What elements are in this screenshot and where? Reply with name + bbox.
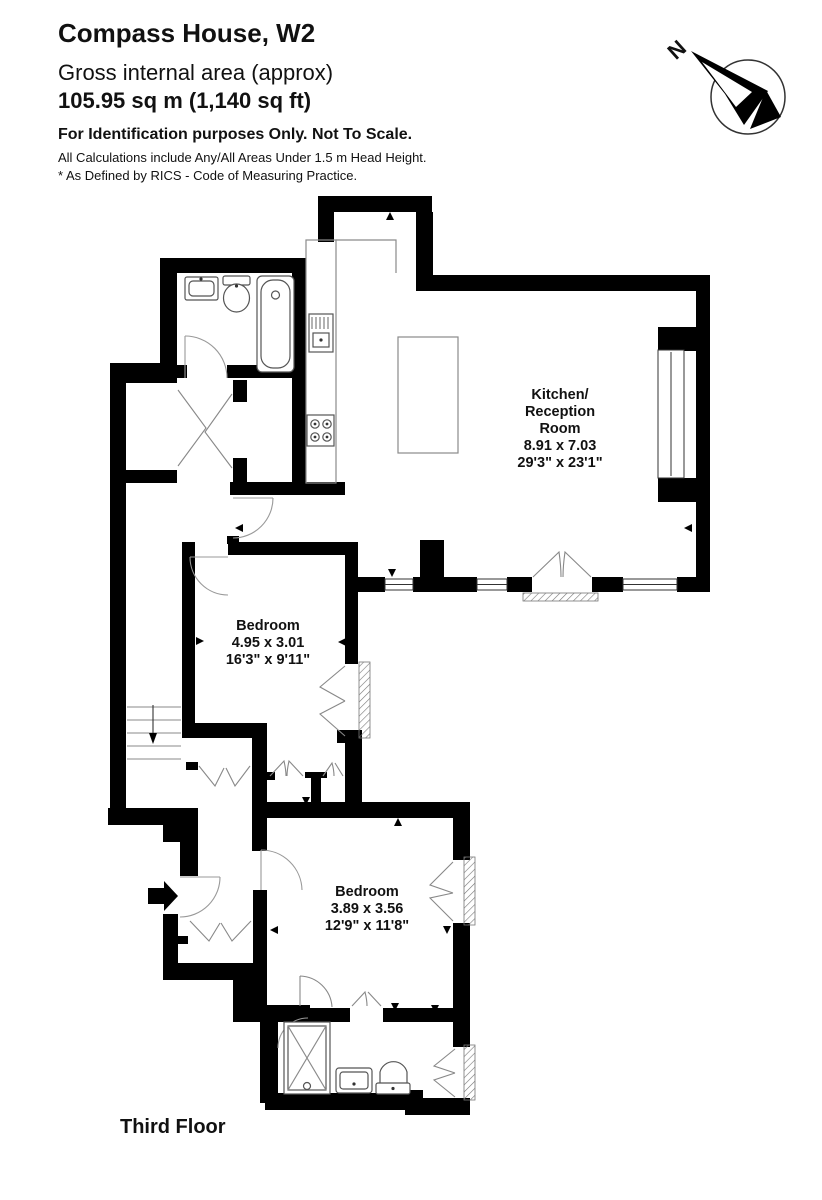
- corridor-door-arc: [233, 498, 273, 538]
- floorplan-drawing: Compass House, W2 Gross internal area (a…: [0, 0, 822, 1200]
- page-title: Compass House, W2: [58, 18, 315, 48]
- staircase: [127, 705, 181, 759]
- bathroom-door-arc: [185, 336, 227, 378]
- toilet-top-bowl: [224, 284, 250, 312]
- reception-french-doors: [533, 552, 591, 577]
- stairs-down-arrow-icon: [149, 733, 157, 744]
- bathroom-window-bifold: [434, 1049, 455, 1097]
- balcony-hatches: [359, 593, 598, 1100]
- kitchen-counter-return: [336, 240, 396, 273]
- bedroom2-juliet-bifold: [430, 862, 453, 921]
- svg-text:8.91 x 7.03: 8.91 x 7.03: [524, 438, 597, 454]
- header: Compass House, W2 Gross internal area (a…: [58, 18, 427, 183]
- kitchen-island: [398, 337, 458, 453]
- svg-text:3.89 x 3.56: 3.89 x 3.56: [331, 901, 404, 917]
- floor-label: Third Floor: [120, 1116, 226, 1138]
- bedroom1-door-arc: [190, 557, 228, 595]
- label-kitchen-reception: Kitchen/ Reception Room 8.91 x 7.03 29'3…: [517, 387, 602, 471]
- svg-text:Reception: Reception: [525, 404, 595, 420]
- bathroom-bottom-fixtures: [284, 1022, 410, 1094]
- entry-door-arc: [180, 877, 220, 917]
- walls: [108, 196, 710, 1115]
- svg-text:29'3" x 23'1": 29'3" x 23'1": [517, 455, 602, 471]
- svg-text:Bedroom: Bedroom: [236, 618, 300, 634]
- bedroom1-juliet-hatch: [359, 662, 370, 738]
- bedroom1-juliet-bifold: [320, 666, 345, 736]
- label-bedroom-1: Bedroom 4.95 x 3.01 16'3" x 9'11": [226, 618, 310, 668]
- label-bedroom-2: Bedroom 3.89 x 3.56 12'9" x 11'8": [325, 884, 409, 934]
- closet2-bifold: [205, 394, 232, 468]
- note-rics: * As Defined by RICS - Code of Measuring…: [58, 168, 357, 183]
- bedroom2-juliet-hatch: [464, 857, 475, 925]
- kitchen-hob: [307, 415, 334, 446]
- bathroom-window-hatch: [464, 1045, 475, 1100]
- note-head-height: All Calculations include Any/All Areas U…: [58, 150, 427, 165]
- bathroom-top-fixtures: [185, 276, 294, 372]
- bedroom2-door-arc: [261, 850, 302, 890]
- closet1-bifold: [178, 390, 206, 466]
- svg-text:Kitchen/: Kitchen/: [531, 387, 588, 403]
- bedroom2-inner-door: [300, 976, 332, 1007]
- svg-text:Bedroom: Bedroom: [335, 884, 399, 900]
- subtitle: Gross internal area (approx): [58, 60, 333, 85]
- svg-text:16'3" x 9'11": 16'3" x 9'11": [226, 652, 310, 668]
- entry-arrow-icon: [148, 881, 178, 911]
- compass-north-label: N: [663, 35, 692, 64]
- svg-text:4.95 x 3.01: 4.95 x 3.01: [232, 635, 305, 651]
- disclaimer-text: For Identification purposes Only. Not To…: [58, 126, 412, 143]
- room-labels: Kitchen/ Reception Room 8.91 x 7.03 29'3…: [226, 387, 603, 934]
- area-text: 105.95 sq m (1,140 sq ft): [58, 88, 311, 113]
- svg-text:Room: Room: [539, 421, 580, 437]
- reception-balcony-hatch: [523, 593, 598, 601]
- toilet-bottom-bowl: [380, 1062, 407, 1083]
- bedroom2-south-doors: [352, 992, 381, 1006]
- compass-rose: N: [663, 35, 785, 134]
- vestibule-bifold: [199, 766, 250, 786]
- floorplan-page: Compass House, W2 Gross internal area (a…: [0, 0, 822, 1200]
- svg-text:12'9" x 11'8": 12'9" x 11'8": [325, 918, 409, 934]
- entry-closet-bifold: [190, 921, 251, 941]
